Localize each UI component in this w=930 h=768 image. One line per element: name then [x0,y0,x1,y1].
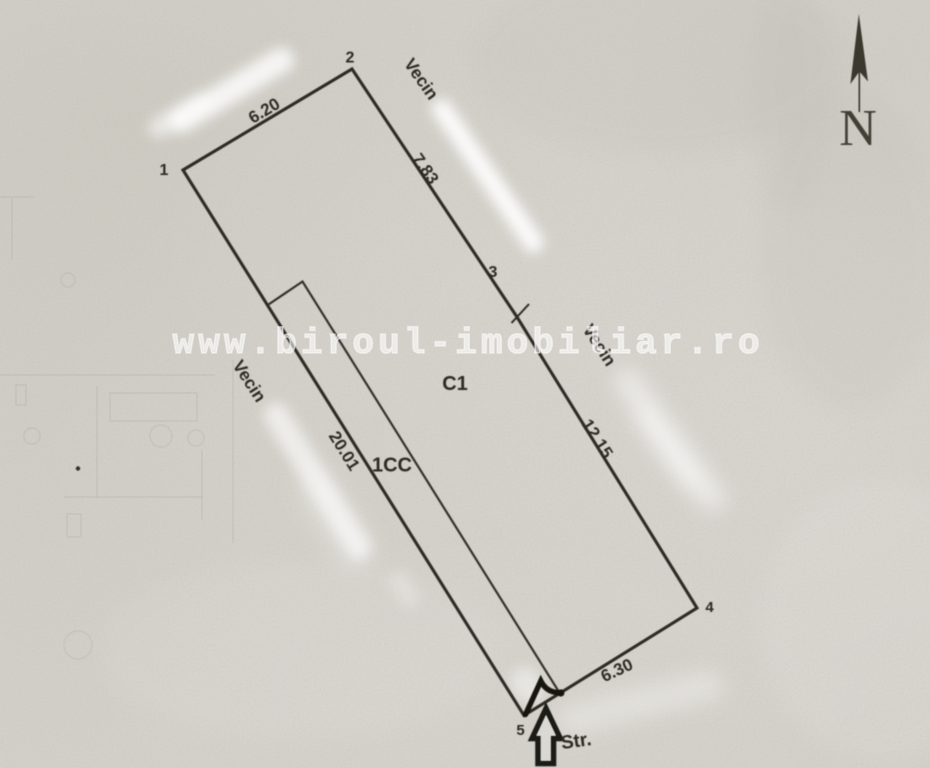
svg-text:C1: C1 [442,373,468,395]
svg-text:N: N [839,100,877,157]
svg-text:2: 2 [346,50,355,67]
svg-text:1CC: 1CC [372,455,412,477]
svg-text:www.biroul-imobiliar.ro: www.biroul-imobiliar.ro [173,323,764,364]
svg-text:Str.: Str. [560,729,593,754]
svg-text:5: 5 [516,722,524,739]
svg-text:3: 3 [489,264,498,281]
svg-text:1: 1 [160,162,169,179]
svg-text:4: 4 [705,599,714,616]
